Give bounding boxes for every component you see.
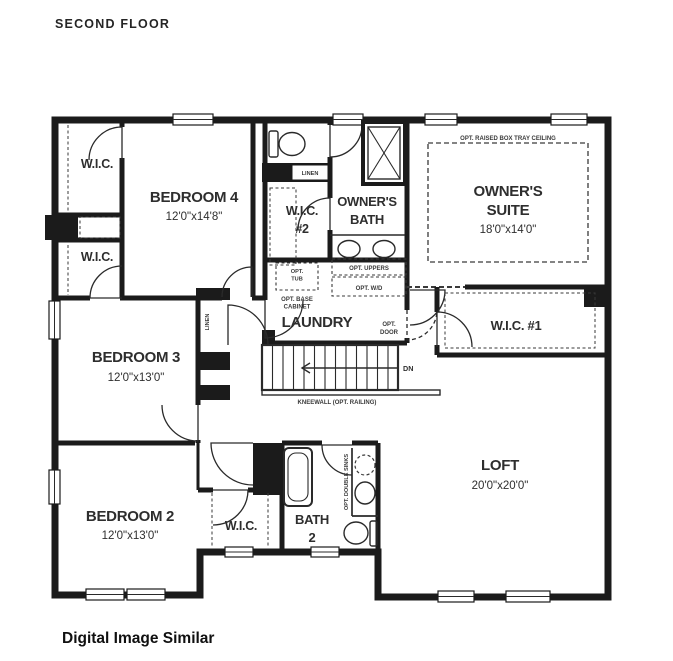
room-label: W.I.C. bbox=[225, 519, 257, 533]
window bbox=[49, 470, 60, 504]
room-bedroom2: BEDROOM 2 12'0"x13'0" bbox=[86, 508, 174, 542]
shower bbox=[363, 122, 405, 184]
room-label: SUITE bbox=[487, 202, 530, 219]
room-dims: 12'0"x13'0" bbox=[102, 530, 159, 542]
toilet bbox=[269, 131, 305, 157]
room-dims: 12'0"x13'0" bbox=[108, 372, 165, 384]
sink bbox=[338, 241, 360, 258]
room-owners-suite: OWNER'S SUITE 18'0"x14'0" bbox=[474, 183, 543, 236]
linen-upper-closet: LINEN bbox=[292, 165, 328, 180]
window bbox=[49, 301, 60, 339]
door-arc bbox=[410, 290, 445, 325]
kneewall-label: KNEEWALL (OPT. RAILING) bbox=[298, 400, 377, 406]
floor-plan-image: SECOND FLOOR bbox=[0, 0, 673, 661]
room-label: W.I.C. #1 bbox=[491, 318, 542, 333]
opt-wd-label: OPT. W/D bbox=[356, 286, 383, 292]
sink bbox=[373, 241, 395, 258]
door-arc bbox=[437, 312, 472, 347]
room-label: BEDROOM 4 bbox=[150, 189, 239, 206]
room-label: 2 bbox=[309, 530, 316, 545]
room-bedroom3: BEDROOM 3 12'0"x13'0" bbox=[92, 349, 180, 384]
room-wic2: W.I.C. #2 bbox=[286, 204, 318, 236]
room-label: OWNER'S bbox=[474, 183, 543, 200]
opt-tub-label: TUB bbox=[291, 277, 303, 283]
room-label: BATH bbox=[350, 212, 384, 227]
room-bedroom4: BEDROOM 4 12'0"x14'8" bbox=[150, 189, 239, 223]
door-arc bbox=[90, 266, 122, 298]
room-label: W.I.C. bbox=[81, 250, 113, 264]
door-arc bbox=[162, 405, 198, 441]
room-wic-top: W.I.C. bbox=[81, 157, 113, 171]
room-label: LOFT bbox=[481, 457, 519, 474]
room-label: LAUNDRY bbox=[282, 314, 353, 331]
room-dims: 18'0"x14'0" bbox=[480, 224, 537, 236]
opt-uppers-label: OPT. UPPERS bbox=[349, 266, 389, 272]
door-arc bbox=[211, 443, 253, 485]
room-label: BEDROOM 2 bbox=[86, 508, 174, 525]
room-label: BATH bbox=[295, 512, 329, 527]
stairs: DN KNEEWALL (OPT. RAILING) bbox=[262, 345, 440, 406]
room-dims: 12'0"x14'8" bbox=[166, 211, 223, 223]
room-wic-bedroom2: W.I.C. bbox=[225, 519, 257, 533]
double-vanity bbox=[330, 235, 405, 258]
stair-direction-arrow bbox=[302, 363, 398, 373]
room-label: W.I.C. bbox=[286, 204, 318, 218]
window bbox=[425, 114, 457, 125]
toilet bbox=[344, 521, 377, 546]
door-arc bbox=[330, 125, 362, 157]
window bbox=[311, 547, 339, 557]
down-label: DN bbox=[403, 364, 413, 373]
window bbox=[173, 114, 213, 125]
room-label: OWNER'S bbox=[337, 194, 397, 209]
door-arc bbox=[89, 127, 122, 160]
window bbox=[127, 589, 165, 600]
window bbox=[225, 547, 253, 557]
window bbox=[333, 114, 363, 125]
room-laundry: LAUNDRY bbox=[282, 314, 353, 331]
floor-plan-page: SECOND FLOOR bbox=[0, 0, 673, 661]
sink bbox=[355, 482, 375, 504]
linen-upper-label: LINEN bbox=[302, 171, 319, 177]
opt-door-label: DOOR bbox=[380, 330, 399, 336]
room-label: #2 bbox=[295, 222, 309, 236]
room-owners-bath: OWNER'S BATH bbox=[337, 194, 397, 227]
optional-sink bbox=[355, 455, 375, 475]
window bbox=[438, 591, 474, 602]
bath2-vanity bbox=[352, 448, 378, 516]
opt-base-cabinet-label: CABINET bbox=[284, 305, 311, 311]
opt-base-cabinet-label: OPT. BASE bbox=[281, 297, 313, 303]
room-label: W.I.C. bbox=[81, 157, 113, 171]
room-label: BEDROOM 3 bbox=[92, 349, 180, 366]
room-wic-left2: W.I.C. bbox=[81, 250, 113, 264]
room-loft: LOFT 20'0"x20'0" bbox=[472, 457, 529, 492]
opt-tub-label: OPT. bbox=[291, 269, 304, 275]
closet-linen-hall: LINEN bbox=[205, 314, 211, 331]
room-dims: 20'0"x20'0" bbox=[472, 480, 529, 492]
room-wic1: W.I.C. #1 bbox=[491, 318, 542, 333]
page-title: SECOND FLOOR bbox=[55, 17, 170, 31]
footer-disclaimer: Digital Image Similar bbox=[62, 630, 214, 647]
window bbox=[551, 114, 587, 125]
room-bath2: BATH 2 OPT. DOUBLE SINKS bbox=[295, 454, 350, 545]
window bbox=[506, 591, 550, 602]
opt-double-sinks-label: OPT. DOUBLE SINKS bbox=[344, 454, 350, 511]
tray-ceiling-label: OPT. RAISED BOX TRAY CEILING bbox=[460, 136, 556, 142]
room-label: LINEN bbox=[205, 314, 211, 331]
window bbox=[86, 589, 124, 600]
opt-door-label: OPT. bbox=[382, 322, 396, 328]
bathtub bbox=[284, 448, 312, 506]
